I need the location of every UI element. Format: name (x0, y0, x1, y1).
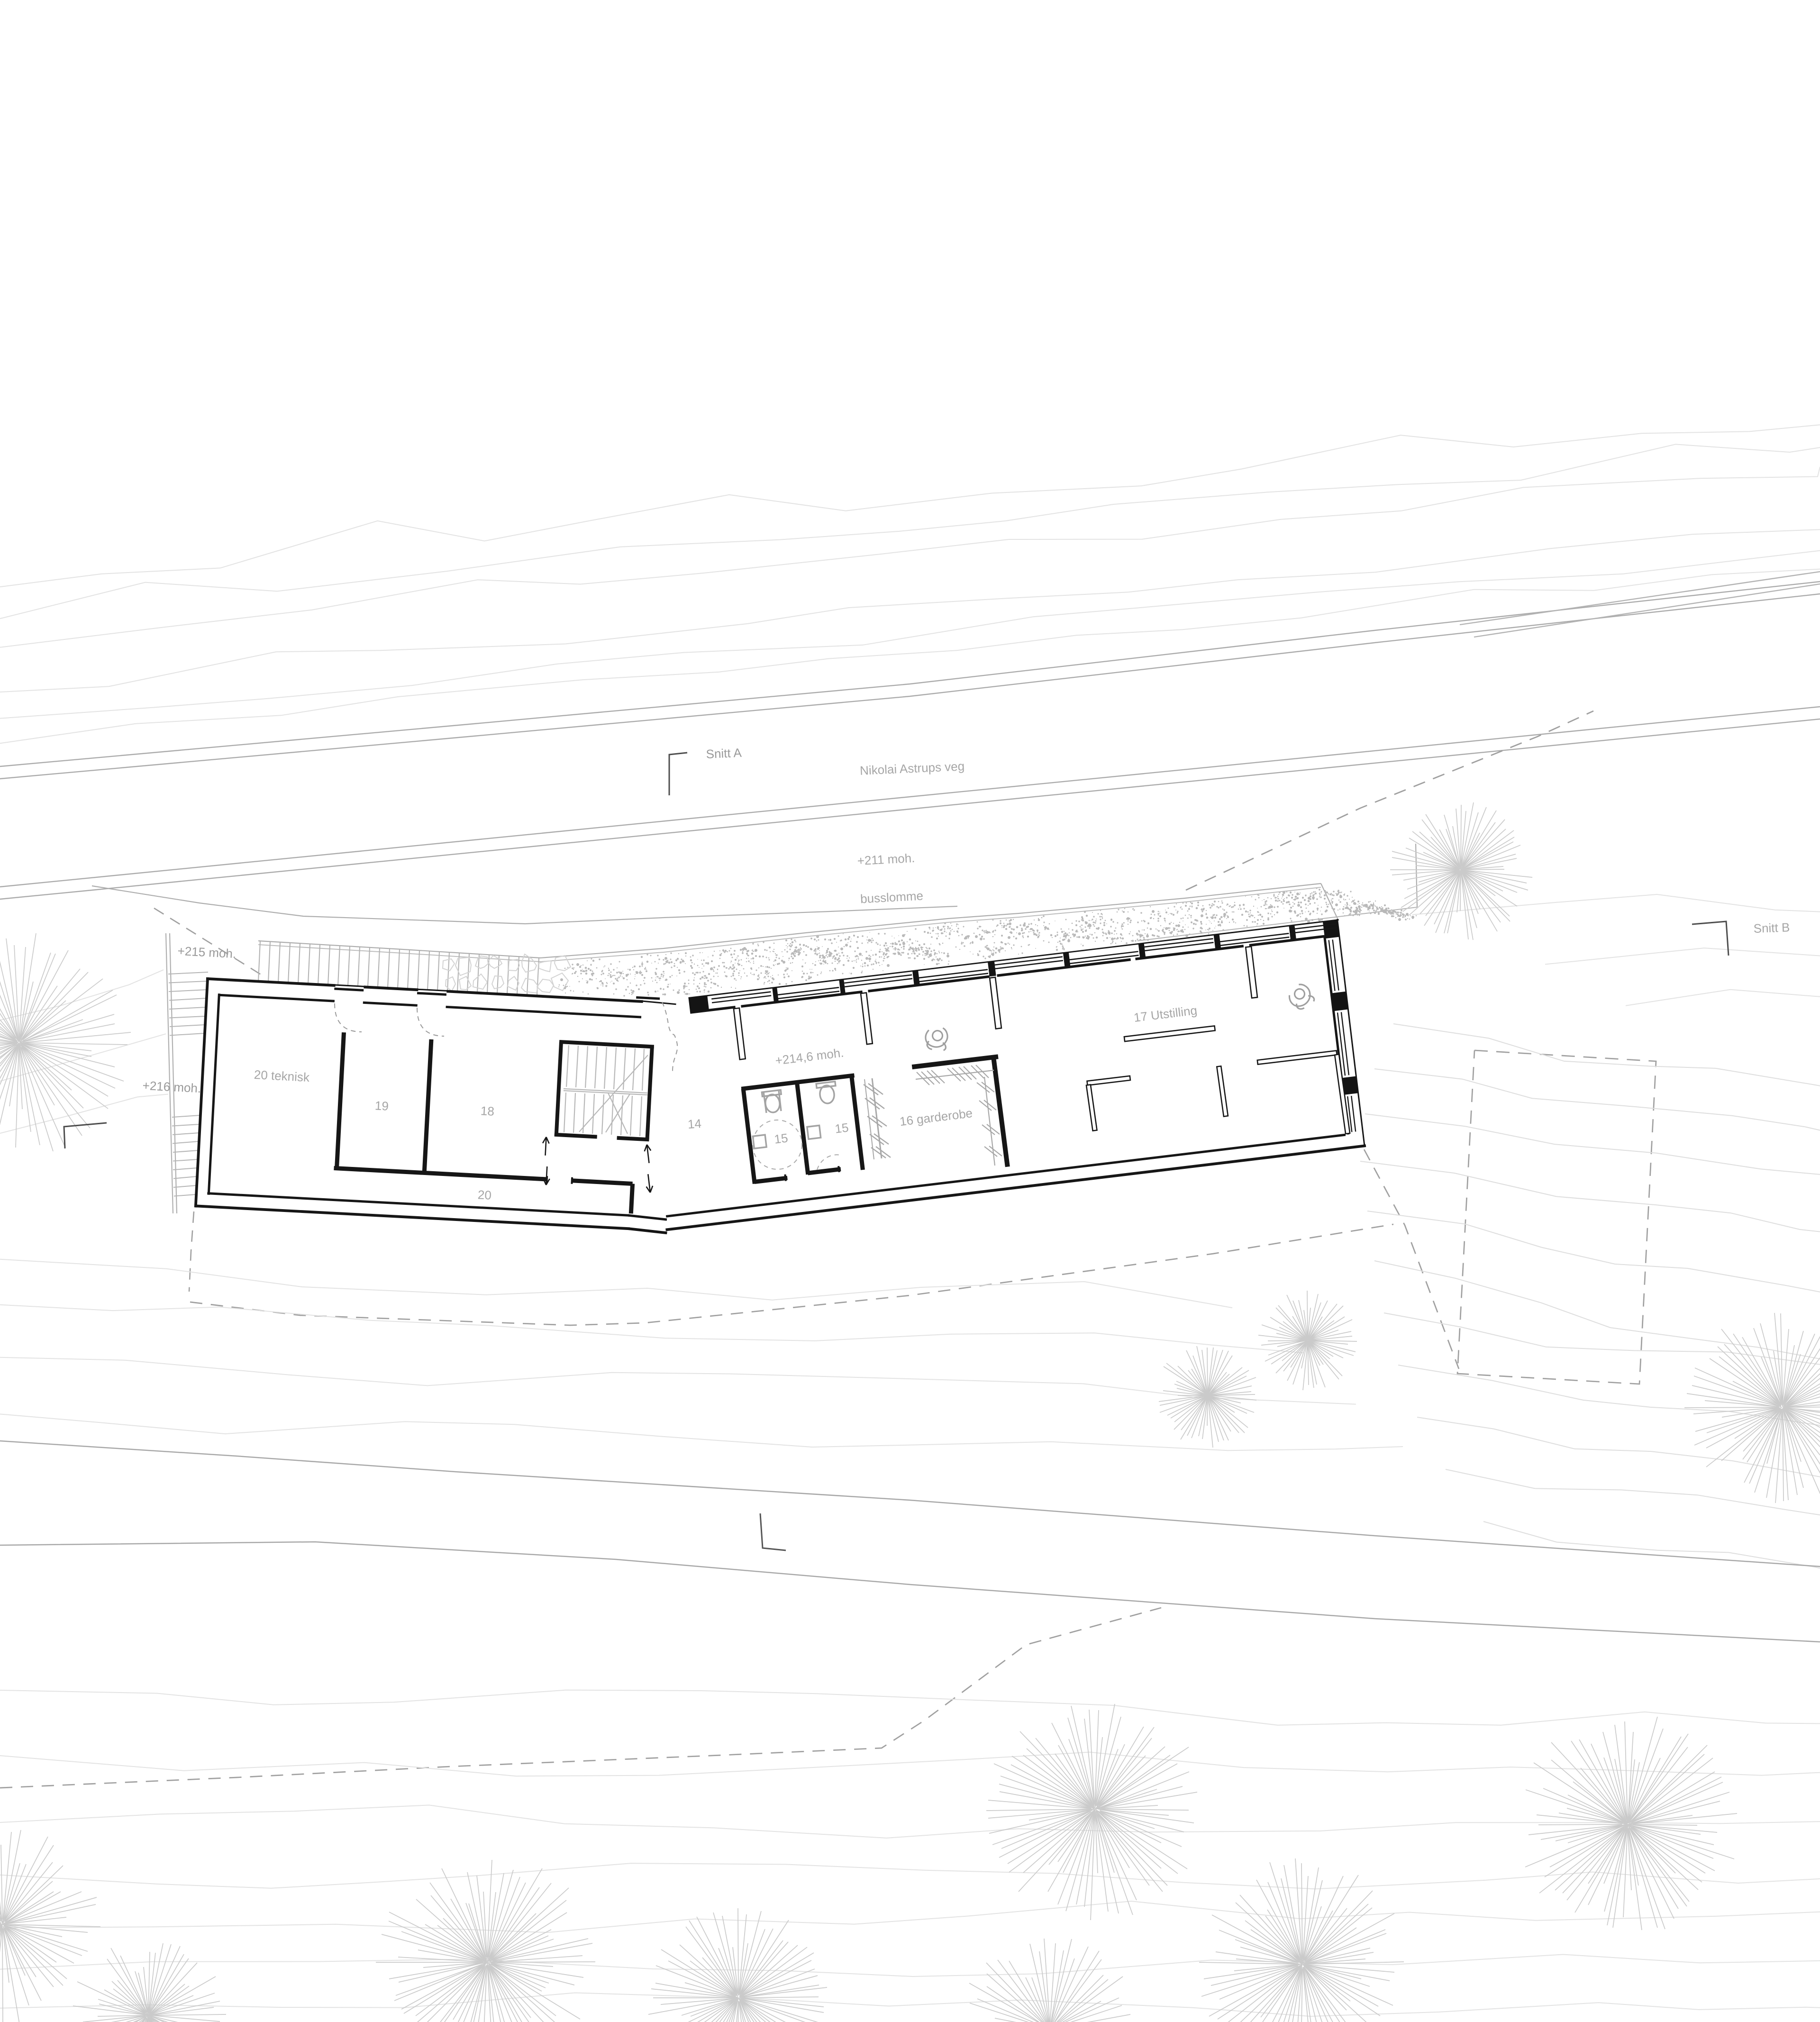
svg-text:15: 15 (834, 1120, 849, 1136)
svg-text:20 teknisk: 20 teknisk (254, 1067, 310, 1084)
svg-text:+211 moh.: +211 moh. (857, 851, 915, 868)
svg-text:20: 20 (477, 1187, 491, 1202)
svg-text:18: 18 (480, 1103, 494, 1118)
svg-text:14: 14 (687, 1116, 702, 1131)
svg-text:19: 19 (374, 1098, 389, 1113)
svg-text:Snitt B: Snitt B (1753, 920, 1790, 936)
svg-text:Snitt A: Snitt A (706, 746, 742, 761)
svg-text:15: 15 (773, 1130, 789, 1146)
